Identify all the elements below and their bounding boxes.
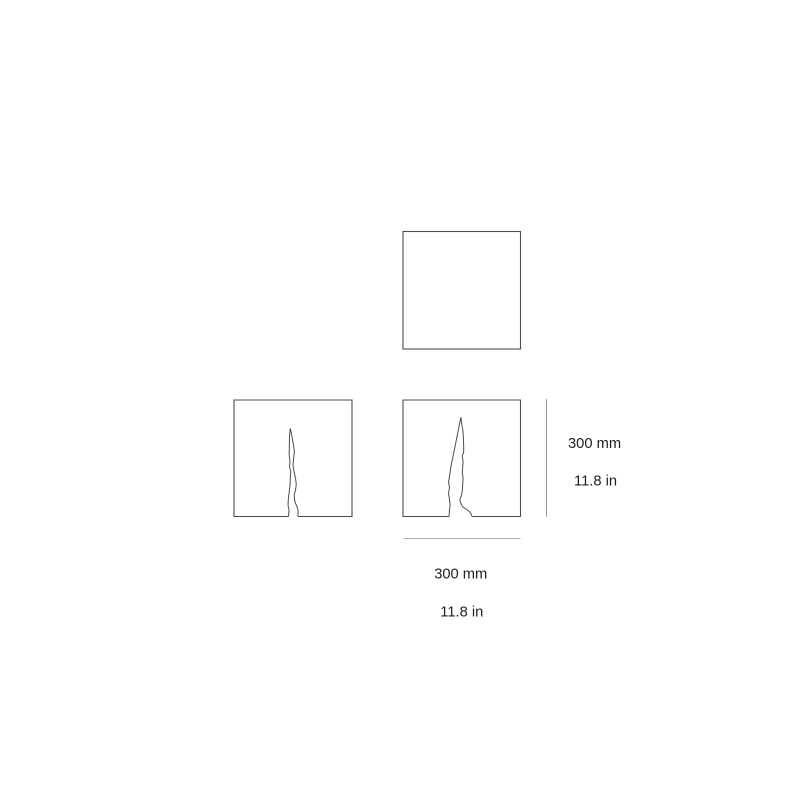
svg-text:300 mm: 300 mm: [568, 436, 621, 452]
svg-text:300 mm: 300 mm: [434, 566, 487, 582]
svg-text:11.8 in: 11.8 in: [574, 473, 617, 489]
svg-text:11.8 in: 11.8 in: [440, 604, 483, 620]
